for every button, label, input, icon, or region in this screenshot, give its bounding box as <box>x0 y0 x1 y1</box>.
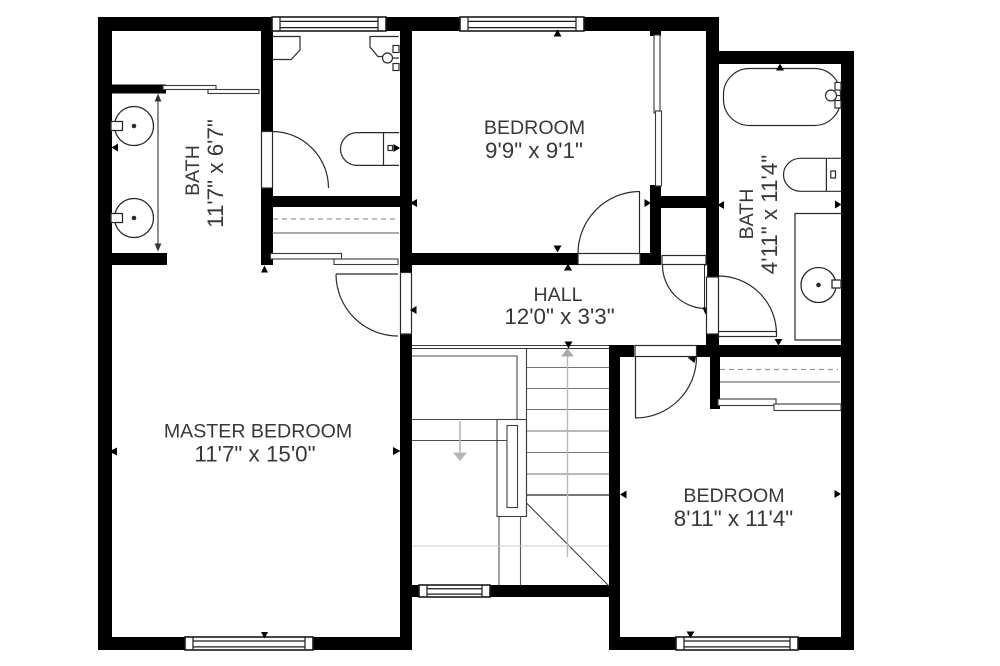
svg-text:MASTER BEDROOM: MASTER BEDROOM <box>164 421 352 443</box>
svg-text:11'7" x 6'7": 11'7" x 6'7" <box>203 119 228 228</box>
svg-text:HALL: HALL <box>533 284 582 306</box>
svg-text:9'9" x 9'1": 9'9" x 9'1" <box>485 138 583 163</box>
svg-text:BATH: BATH <box>182 145 204 196</box>
svg-text:12'0" x 3'3": 12'0" x 3'3" <box>504 304 614 329</box>
svg-text:BEDROOM: BEDROOM <box>484 117 585 139</box>
svg-text:BEDROOM: BEDROOM <box>683 485 784 507</box>
svg-text:BATH: BATH <box>736 189 758 240</box>
svg-text:8'11" x 11'4": 8'11" x 11'4" <box>674 506 793 531</box>
svg-text:11'7" x 15'0": 11'7" x 15'0" <box>194 441 315 466</box>
svg-text:4'11" x 11'4": 4'11" x 11'4" <box>757 155 782 274</box>
